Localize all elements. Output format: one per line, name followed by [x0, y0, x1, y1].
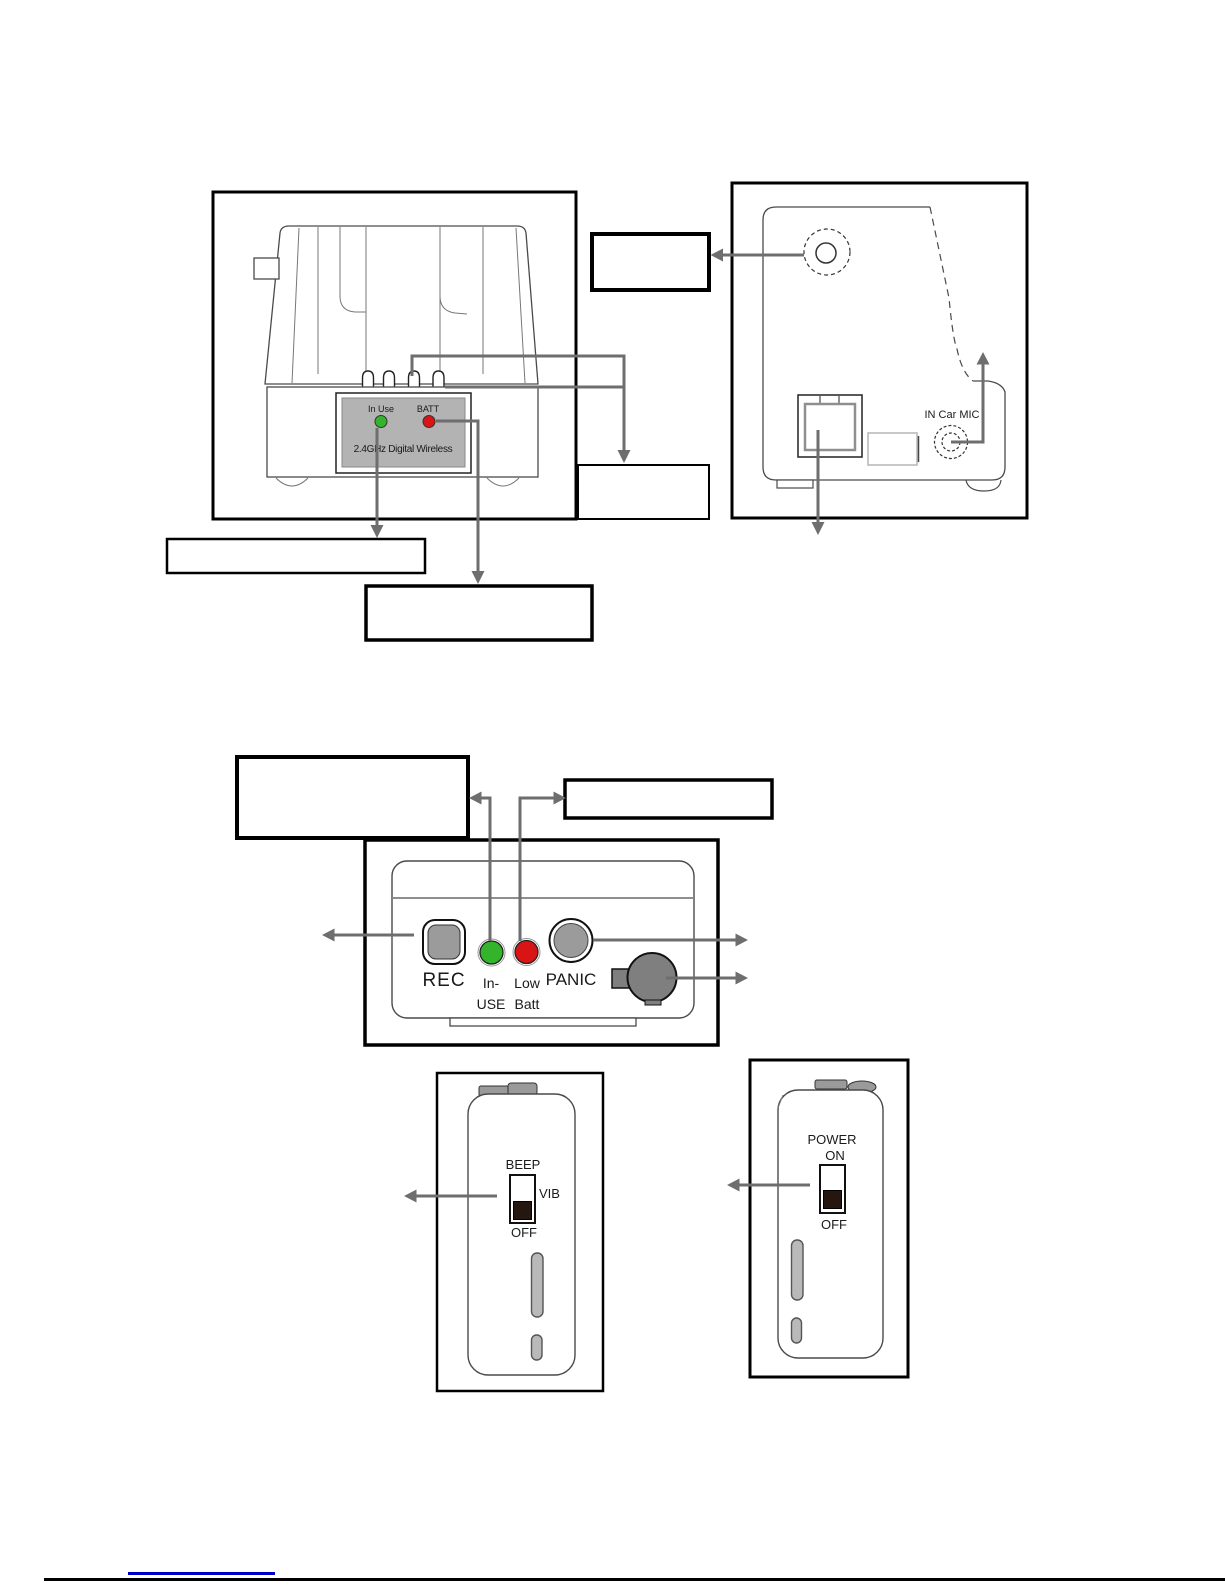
rec-button	[428, 925, 460, 959]
inuse-label-line2: USE	[477, 996, 506, 1012]
handset-side-power-figure: POWER ON OFF	[750, 1060, 908, 1377]
footer-rule	[44, 1578, 1225, 1581]
handset-inuse-led	[480, 941, 503, 964]
side-knob-tab	[645, 1000, 661, 1005]
handset-side-beep-figure: BEEP VIB OFF	[437, 1073, 603, 1391]
in-use-led-label: In Use	[368, 404, 394, 414]
callout-box-handset-lowbatt-led	[565, 780, 772, 818]
beep-off-label: OFF	[511, 1225, 537, 1240]
cradle-back-hidden-edge	[930, 207, 973, 381]
handset-front-drawing: REC In- USE Low Batt PANIC	[392, 861, 694, 1026]
panic-button	[554, 924, 588, 958]
arrowhead-left	[727, 1179, 740, 1192]
power-label: POWER	[807, 1132, 856, 1147]
footer-link-underline	[128, 1572, 275, 1575]
lowbatt-label-line2: Batt	[515, 996, 540, 1012]
on-label: ON	[825, 1148, 845, 1163]
batt-led-label: BATT	[417, 404, 440, 414]
power-off-label: OFF	[821, 1217, 847, 1232]
cradle-side-tab	[254, 258, 279, 279]
arrowhead-down	[618, 450, 631, 463]
cradle-back-foot-right	[966, 480, 1001, 491]
arrowhead-down	[472, 571, 485, 584]
cradle-back-foot	[777, 480, 813, 488]
arrowhead-left	[711, 249, 724, 262]
beep-vib-off-switch	[514, 1202, 532, 1220]
volume-knob	[816, 243, 836, 263]
callout-box-batt-led	[366, 586, 592, 640]
charge-contact	[409, 371, 420, 389]
charge-contact	[384, 371, 395, 389]
callout-box-inuse-led	[167, 539, 425, 573]
slot-short	[532, 1335, 543, 1360]
batt-led	[423, 416, 435, 428]
panic-label: PANIC	[546, 970, 597, 989]
vib-label: VIB	[539, 1186, 560, 1201]
lowbatt-label-line1: Low	[514, 975, 541, 991]
charge-contact	[433, 371, 444, 389]
arrowhead-right	[736, 972, 749, 985]
handset-base-tab	[450, 1018, 636, 1026]
arrow-volume-knob-to-callout	[711, 249, 805, 262]
manual-page: In Use BATT 2.4GHz Digital Wireless IN C…	[0, 0, 1225, 1585]
inuse-label-line1: In-	[483, 975, 500, 991]
brand-label: 2.4GHz Digital Wireless	[354, 444, 453, 455]
arrowhead-right	[736, 934, 749, 947]
handset-lowbatt-led	[515, 941, 538, 964]
handset-front-figure: REC In- USE Low Batt PANIC	[365, 840, 718, 1045]
top-clip-right	[508, 1083, 537, 1095]
brand-plate	[342, 398, 465, 467]
slot-long	[792, 1240, 804, 1300]
callout-box-volume-knob	[592, 234, 709, 290]
arrow-in-car-mic	[951, 352, 990, 442]
callout-box-handset-inuse-led	[237, 757, 468, 838]
slot-short	[792, 1318, 802, 1343]
handset-side-beep-drawing: BEEP VIB OFF	[468, 1083, 575, 1375]
callout-box-charge-contacts	[578, 465, 709, 519]
in-use-led	[375, 416, 387, 428]
power-switch	[824, 1191, 842, 1209]
arrowhead-down	[812, 522, 825, 535]
cradle-body	[265, 226, 538, 384]
dc-port	[868, 433, 917, 465]
arrowhead-down	[371, 525, 384, 538]
cradle-feet	[276, 478, 519, 486]
slot-long	[532, 1253, 544, 1317]
arrowhead-left	[469, 792, 482, 805]
charge-contact	[363, 371, 374, 389]
top-clip-bar	[815, 1080, 847, 1089]
arrowhead-left	[404, 1190, 417, 1203]
in-car-mic-label: IN Car MIC	[925, 409, 980, 421]
rec-label: REC	[422, 970, 465, 991]
cradle-back-figure-box	[732, 183, 1027, 518]
beep-label: BEEP	[506, 1157, 541, 1172]
cradle-back-figure: IN Car MIC	[732, 183, 1027, 518]
arrowhead-up	[977, 352, 990, 365]
cradle-back-drawing: IN Car MIC	[763, 207, 1005, 491]
diagram-canvas: In Use BATT 2.4GHz Digital Wireless IN C…	[0, 0, 1225, 1585]
arrowhead-left	[322, 929, 335, 942]
handset-side-power-drawing: POWER ON OFF	[778, 1080, 883, 1358]
